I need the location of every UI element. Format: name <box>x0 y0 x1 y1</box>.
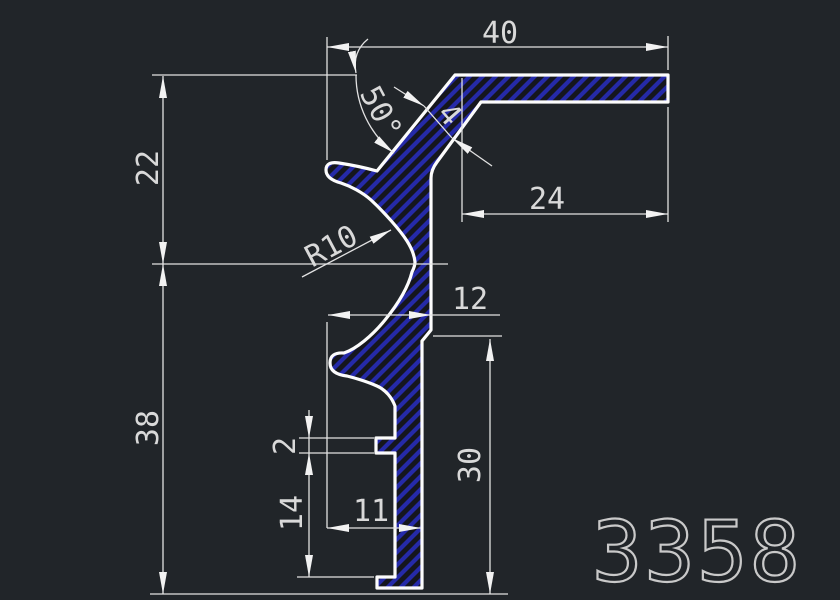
dimension-38: 38 <box>131 264 166 594</box>
cad-drawing: 40 50° 4 22 38 24 R10 12 30 <box>0 0 840 600</box>
dim-label-30: 30 <box>453 447 488 483</box>
cad-drawing-viewport: 40 50° 4 22 38 24 R10 12 30 <box>0 0 840 600</box>
dim-label-40: 40 <box>482 16 518 51</box>
dim-label-14: 14 <box>275 495 310 531</box>
dimension-2: 2 <box>268 410 309 455</box>
dim-label-50deg: 50° <box>352 80 408 144</box>
part-number: 3358 <box>592 503 802 600</box>
dimension-24: 24 <box>462 182 668 217</box>
dimension-22: 22 <box>131 76 166 264</box>
dim-label-24: 24 <box>529 182 565 217</box>
dimension-40: 40 <box>327 16 668 51</box>
dim-label-22: 22 <box>131 150 166 186</box>
dimension-30: 30 <box>453 339 490 594</box>
dim-label-r10: R10 <box>299 218 363 274</box>
dim-leader <box>394 87 424 106</box>
dim-label-38: 38 <box>131 410 166 446</box>
dimension-50deg: 50° <box>352 39 408 153</box>
dim-leader <box>452 138 492 166</box>
dimension-14: 14 <box>275 453 310 577</box>
dim-label-12: 12 <box>452 282 488 317</box>
dim-label-2: 2 <box>268 437 303 455</box>
angle-leader <box>355 39 368 73</box>
dimension-r10: R10 <box>299 218 391 277</box>
dim-label-11: 11 <box>353 494 389 529</box>
